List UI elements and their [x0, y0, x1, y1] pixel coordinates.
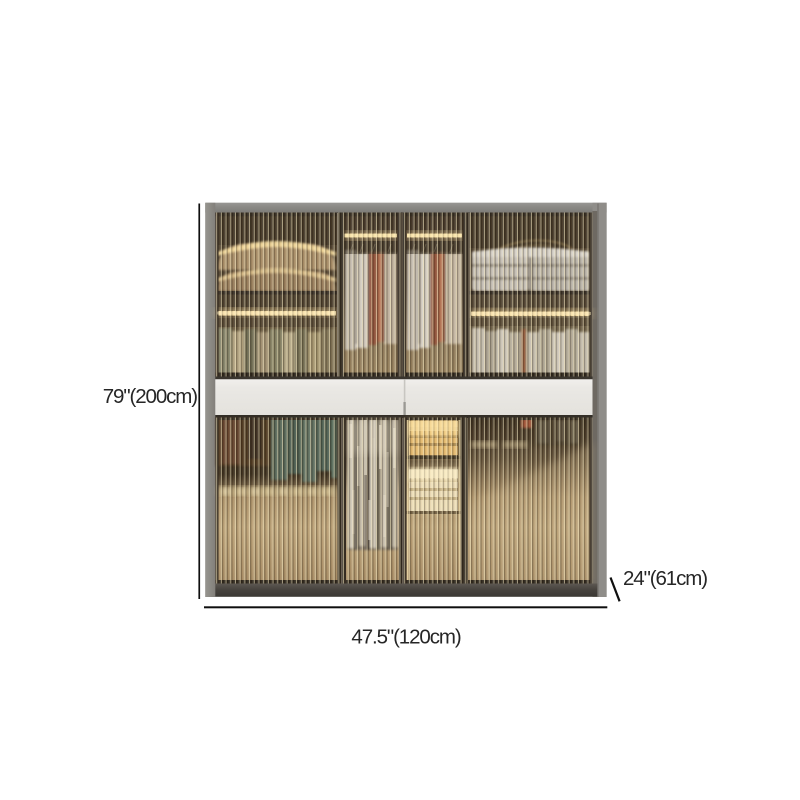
svg-text:24"(61cm): 24"(61cm) — [623, 567, 707, 590]
svg-text:79"(200cm): 79"(200cm) — [103, 385, 198, 408]
svg-text:47.5"(120cm): 47.5"(120cm) — [351, 626, 460, 649]
